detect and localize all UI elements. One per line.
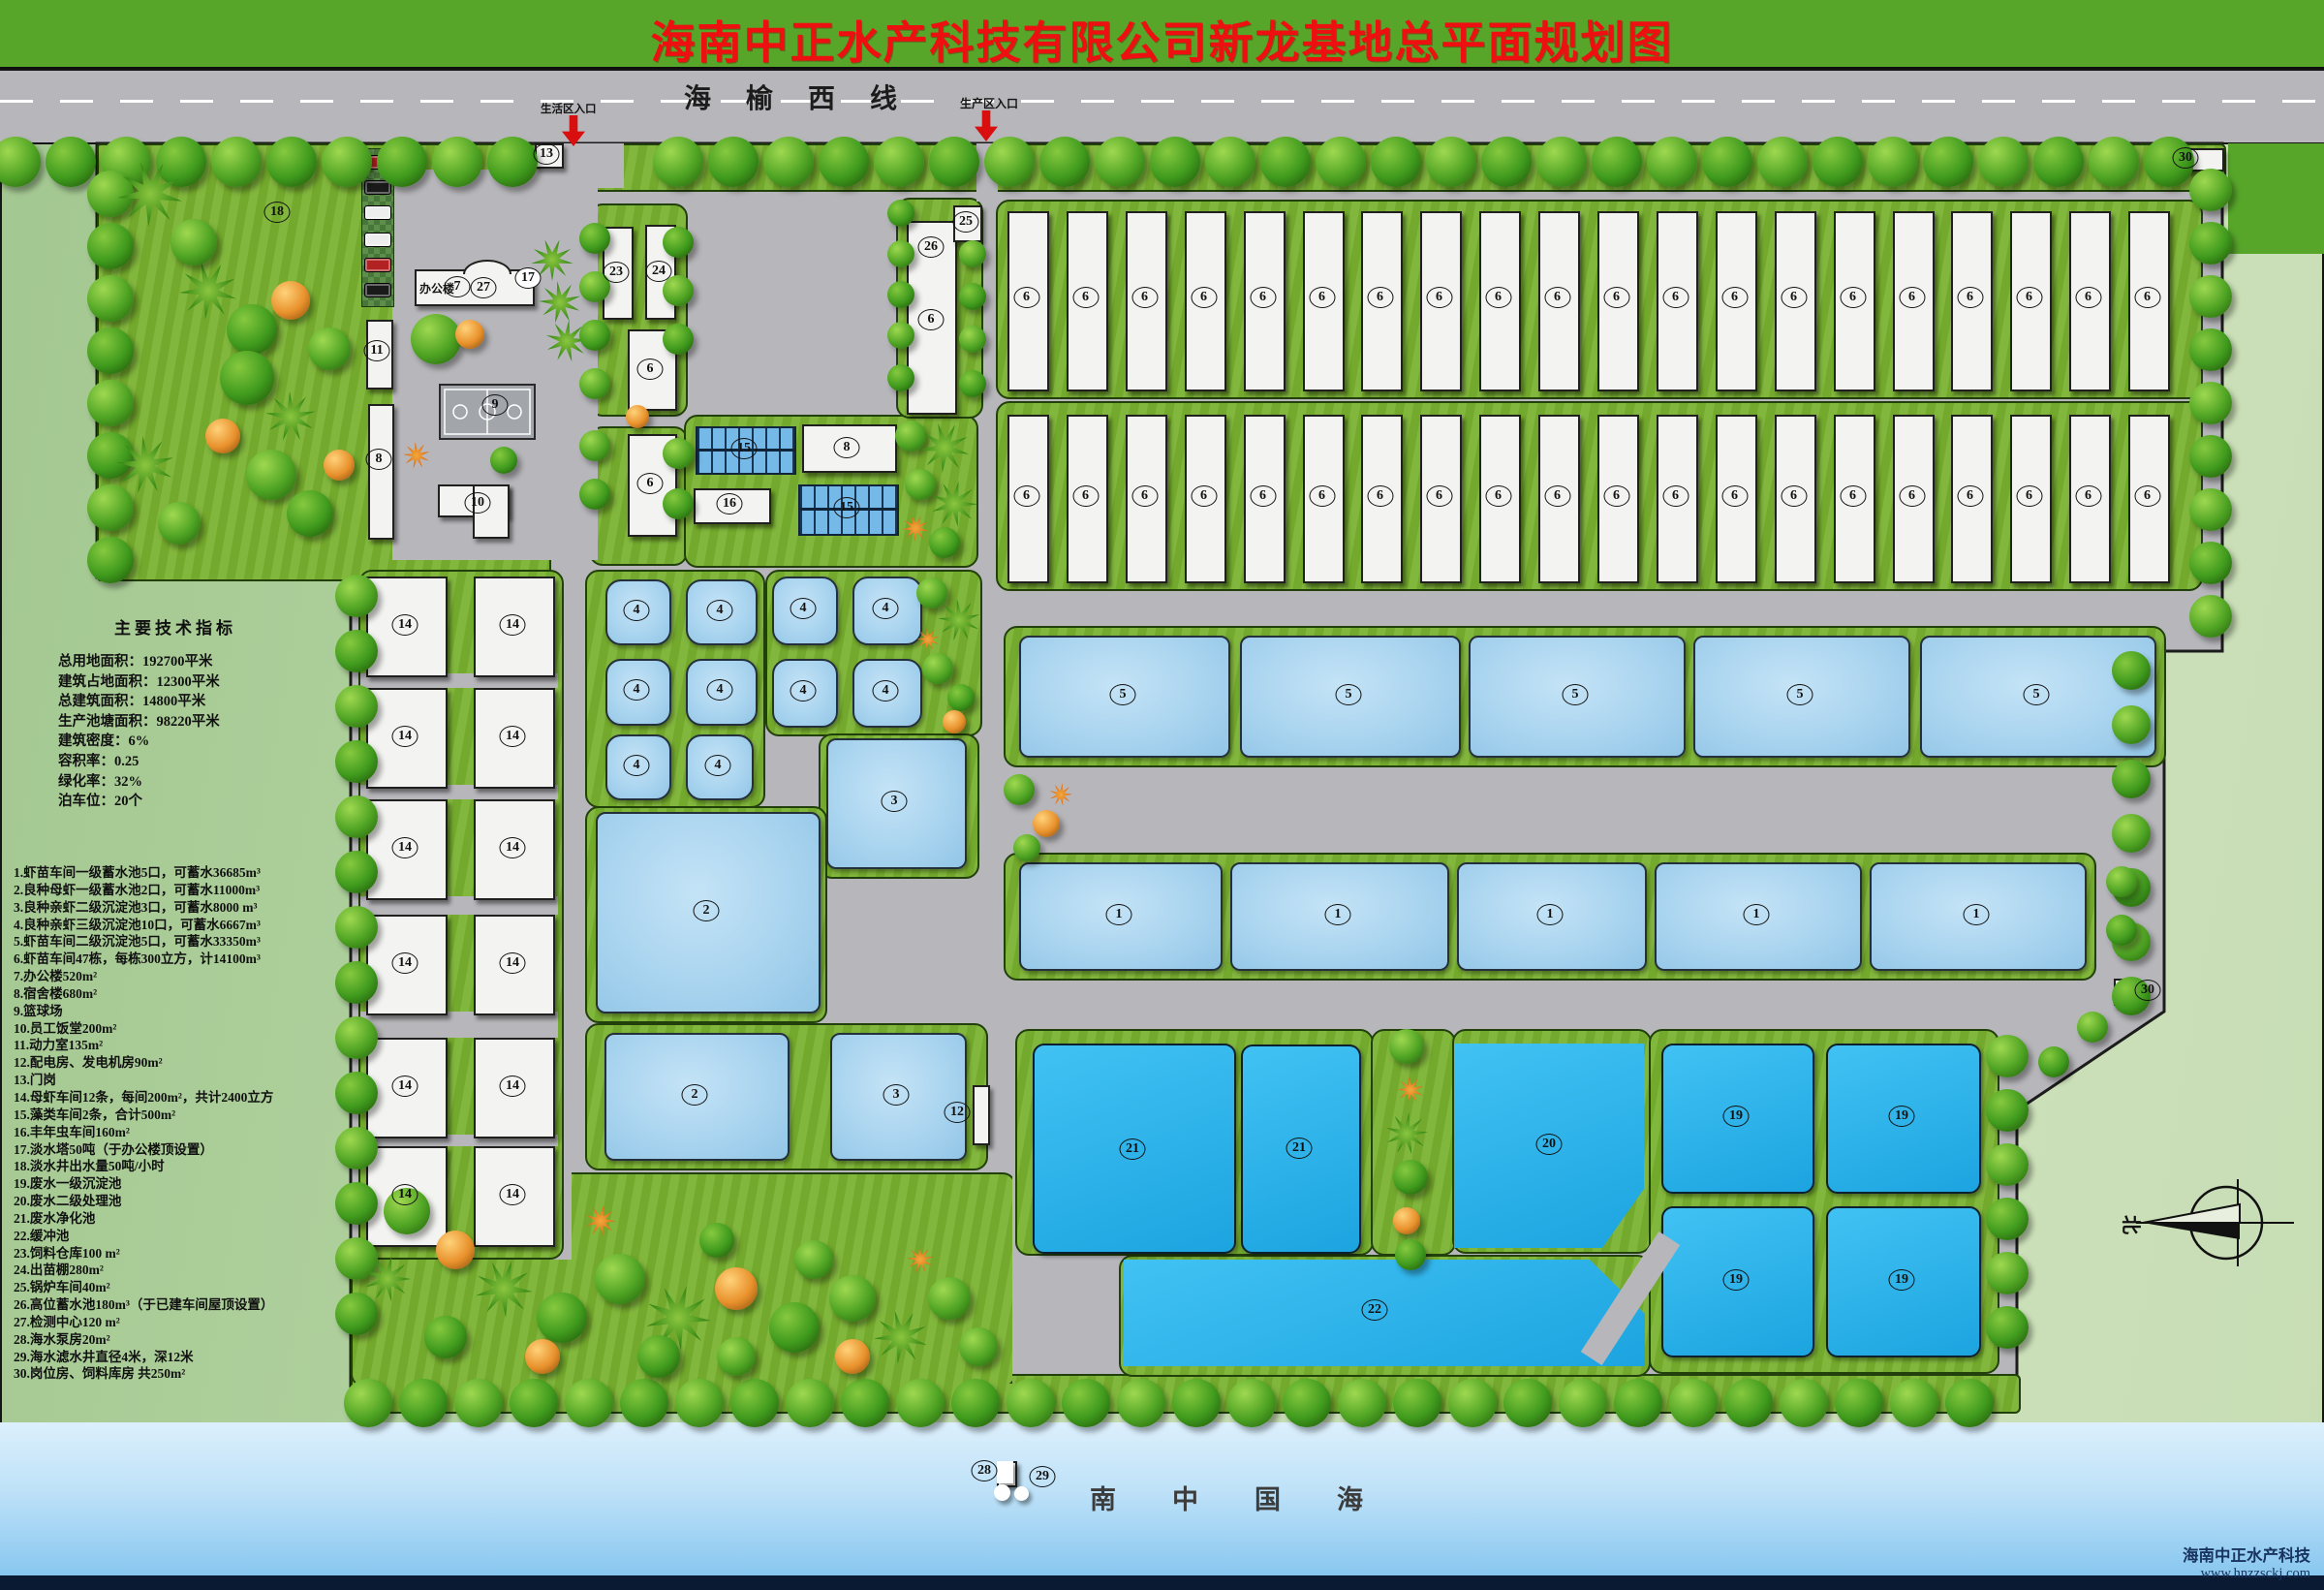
tree-icon [959, 326, 986, 353]
parked-car [364, 233, 391, 247]
legend-item: 20.废水二级处理池 [14, 1193, 273, 1210]
tree-icon [2112, 651, 2151, 690]
tree-icon [2189, 222, 2232, 265]
tree-icon [1283, 1379, 1331, 1427]
tree-icon [841, 1379, 889, 1427]
tree-icon [2189, 542, 2232, 584]
map-marker-6: 6 [1721, 287, 1748, 308]
tree-icon [959, 370, 986, 397]
legend-item: 19.废水一级沉淀池 [14, 1175, 273, 1193]
tree-icon [1702, 137, 1752, 187]
map-marker-16: 16 [717, 493, 743, 514]
map-marker-4: 4 [624, 755, 650, 776]
map-marker-2: 2 [694, 900, 720, 921]
legend-item: 12.配电房、发电机房90m² [14, 1054, 273, 1072]
tree-icon [595, 1254, 645, 1304]
map-marker-6: 6 [2016, 485, 2042, 507]
map-marker-4: 4 [873, 680, 899, 701]
tree-icon [929, 527, 960, 558]
legend-item: 17.淡水塔50吨（于办公楼顶设置） [14, 1141, 273, 1159]
tree-icon [2189, 328, 2232, 371]
map-marker-3: 3 [883, 1084, 910, 1106]
tree-icon [266, 137, 317, 187]
tree-icon [708, 137, 759, 187]
tree-icon [87, 171, 134, 217]
watermark-website: www.hnzzsckj.com [2183, 1566, 2310, 1582]
tree-icon [1049, 783, 1072, 806]
map-marker-14: 14 [500, 952, 526, 974]
map-marker-11: 11 [364, 340, 390, 361]
map-marker-6: 6 [1250, 485, 1276, 507]
map-marker-24: 24 [646, 261, 672, 282]
tree-icon [663, 324, 694, 355]
map-marker-14: 14 [392, 952, 418, 974]
tree-icon [335, 1072, 378, 1114]
map-marker-13: 13 [534, 143, 560, 165]
tree-icon [87, 223, 134, 269]
tree-icon [1481, 137, 1532, 187]
tree-icon [510, 1379, 558, 1427]
map-marker-27: 27 [471, 277, 497, 298]
map-marker-5: 5 [1563, 684, 1589, 705]
tree-icon [959, 1327, 998, 1366]
tree-icon [1007, 1379, 1055, 1427]
tree-icon [1095, 137, 1145, 187]
map-marker-28: 28 [972, 1460, 998, 1481]
tree-icon [335, 740, 378, 783]
tree-icon [786, 1379, 834, 1427]
tree-icon [1986, 1252, 2029, 1294]
tree-icon [1780, 1379, 1828, 1427]
tree-icon [730, 1379, 779, 1427]
tree-icon [2077, 1012, 2108, 1043]
tree-icon [887, 322, 914, 349]
tree-icon [1757, 137, 1808, 187]
legend-item: 2.良种母虾一级蓄水池2口，可蓄水11000m³ [14, 882, 273, 899]
tree-icon [2033, 137, 2084, 187]
map-marker-14: 14 [500, 726, 526, 747]
tech-indicator-line: 绿化率：32% [58, 772, 236, 793]
tree-icon [2106, 915, 2137, 946]
map-marker-6: 6 [637, 359, 664, 380]
map-marker-4: 4 [705, 755, 731, 776]
tree-icon [271, 281, 310, 320]
map-marker-1: 1 [1537, 904, 1564, 925]
tree-icon [794, 1240, 833, 1279]
south-china-sea [0, 1422, 2324, 1590]
tree-icon [2189, 488, 2232, 531]
tree-icon [947, 684, 975, 711]
map-marker-30: 30 [2135, 980, 2161, 1001]
map-marker-6: 6 [1899, 485, 1925, 507]
tree-icon [46, 137, 96, 187]
map-marker-2: 2 [682, 1084, 708, 1106]
map-marker-6: 6 [1131, 485, 1158, 507]
tree-icon [87, 327, 134, 374]
map-marker-6: 6 [1840, 287, 1866, 308]
tree-icon [874, 137, 924, 187]
legend-item: 23.饲料仓库100 m² [14, 1245, 273, 1263]
compass-north-label: 北 [2122, 1215, 2142, 1234]
legend-item: 3.良种亲虾二级沉淀池3口，可蓄水8000 m³ [14, 899, 273, 917]
tree-icon [436, 1231, 475, 1269]
map-marker-18: 18 [264, 202, 291, 223]
tree-icon [1724, 1379, 1773, 1427]
tree-icon [170, 219, 217, 265]
legend-item: 16.丰年虫车间160m² [14, 1124, 273, 1141]
tree-icon [626, 405, 649, 428]
tree-icon [1062, 1379, 1110, 1427]
sea-name-char: 国 [1255, 1479, 1281, 1516]
tree-icon [2189, 435, 2232, 478]
map-marker-6: 6 [1131, 287, 1158, 308]
watermark-company: 海南中正水产科技 [2183, 1543, 2310, 1566]
tree-icon [1890, 1379, 1938, 1427]
map-marker-15: 15 [731, 438, 758, 459]
tree-icon [896, 1379, 945, 1427]
tree-icon [335, 575, 378, 617]
tree-icon [158, 502, 201, 545]
tree-icon [487, 137, 538, 187]
tree-icon [87, 537, 134, 583]
tree-icon [0, 137, 41, 187]
map-marker-4: 4 [707, 679, 733, 701]
map-marker-6: 6 [1426, 485, 1452, 507]
tree-icon [1835, 1379, 1883, 1427]
map-marker-6: 6 [2134, 485, 2160, 507]
tree-icon [763, 137, 814, 187]
map-marker-19: 19 [1889, 1269, 1915, 1291]
tree-icon [2106, 866, 2137, 897]
sea-name-char: 南 [1090, 1479, 1116, 1516]
tree-icon [1395, 1239, 1426, 1270]
tree-icon [1978, 137, 2029, 187]
map-marker-6: 6 [1781, 485, 1807, 507]
map-marker-6: 6 [1662, 287, 1689, 308]
map-marker-12: 12 [945, 1102, 971, 1123]
tree-icon [1150, 137, 1200, 187]
map-marker-8: 8 [366, 449, 392, 470]
tree-icon [344, 1379, 392, 1427]
map-marker-10: 10 [465, 492, 491, 514]
tree-icon [819, 137, 869, 187]
tech-indicator-line: 泊车位：20个 [58, 792, 236, 812]
tree-icon [335, 906, 378, 949]
tree-icon [377, 137, 427, 187]
map-marker-4: 4 [790, 598, 817, 619]
map-marker-14: 14 [392, 726, 418, 747]
legend-item: 5.虾苗车间二级沉淀池5口，可蓄水33350m³ [14, 933, 273, 951]
tree-icon [322, 137, 372, 187]
map-marker-6: 6 [918, 309, 945, 330]
tech-indicators-title: 主要技术指标 [114, 614, 236, 639]
tree-icon [335, 795, 378, 838]
tree-icon [1172, 1379, 1221, 1427]
tree-icon [87, 432, 134, 479]
map-marker-6: 6 [1544, 485, 1570, 507]
tree-icon [959, 283, 986, 310]
tree-icon [87, 275, 134, 322]
tree-icon [335, 961, 378, 1004]
tree-icon [579, 479, 610, 510]
tree-icon [1393, 1379, 1441, 1427]
tree-icon [1004, 774, 1035, 805]
legend-item: 28.海水泵房20m² [14, 1331, 273, 1349]
map-marker-14: 14 [500, 614, 526, 636]
tree-icon [1448, 1379, 1497, 1427]
tech-indicators-panel: 主要技术指标 总用地面积：192700平米建筑占地面积：12300平米总建筑面积… [58, 614, 236, 812]
tree-icon [1986, 1035, 2029, 1077]
map-marker-4: 4 [790, 680, 817, 701]
tree-icon [1227, 1379, 1276, 1427]
building [368, 404, 394, 540]
map-marker-26: 26 [918, 236, 945, 258]
tree-icon [1316, 137, 1366, 187]
tree-icon [1986, 1089, 2029, 1132]
map-marker-6: 6 [2075, 485, 2101, 507]
map-marker-6: 6 [1840, 485, 1866, 507]
tree-icon [455, 320, 484, 349]
map-marker-6: 6 [1191, 287, 1217, 308]
map-marker-19: 19 [1723, 1269, 1750, 1291]
map-marker-14: 14 [500, 1184, 526, 1205]
tree-icon [1503, 1379, 1552, 1427]
tree-icon [490, 447, 517, 474]
map-marker-5: 5 [1787, 684, 1813, 705]
parked-car [364, 205, 391, 220]
map-marker-6: 6 [1603, 485, 1629, 507]
map-marker-23: 23 [604, 262, 630, 283]
road-gap [360, 1012, 558, 1038]
tree-icon [324, 450, 355, 481]
tree-icon [227, 304, 277, 355]
legend-item: 14.母虾车间12条，每间200m²，共计2400立方 [14, 1089, 273, 1107]
tree-icon [895, 421, 926, 452]
tree-icon [887, 364, 914, 391]
tree-icon [675, 1379, 724, 1427]
tree-icon [637, 1335, 680, 1378]
map-marker-25: 25 [953, 211, 979, 233]
tech-indicator-line: 建筑密度：6% [58, 732, 236, 752]
tree-icon [335, 1127, 378, 1169]
map-marker-6: 6 [2016, 287, 2042, 308]
sea-filter-well [1014, 1486, 1029, 1501]
map-marker-6: 6 [1662, 485, 1689, 507]
map-marker-4: 4 [873, 598, 899, 619]
legend-item: 13.门岗 [14, 1072, 273, 1089]
compass-icon: 北 [2122, 1174, 2306, 1271]
map-marker-6: 6 [1544, 287, 1570, 308]
tree-icon [1813, 137, 1863, 187]
tree-icon [579, 320, 610, 351]
building [973, 1085, 990, 1145]
legend-item: 26.高位蓄水池180m³（于已建车间屋顶设置） [14, 1296, 273, 1314]
tree-icon [951, 1379, 1000, 1427]
map-marker-4: 4 [624, 679, 650, 701]
tree-icon [829, 1275, 876, 1322]
tree-icon [87, 484, 134, 531]
map-marker-21: 21 [1286, 1138, 1313, 1159]
tree-icon [335, 1016, 378, 1059]
tree-icon [399, 1379, 448, 1427]
watermark: 海南中正水产科技 www.hnzzsckj.com [2183, 1543, 2310, 1582]
map-marker-5: 5 [1336, 684, 1362, 705]
map-marker-6: 6 [1309, 485, 1335, 507]
tree-icon [835, 1339, 870, 1374]
tree-icon [984, 137, 1035, 187]
tree-icon [454, 1379, 503, 1427]
tree-icon [287, 490, 333, 537]
legend-item: 4.良种亲虾三级沉淀池10口，可蓄水6667m³ [14, 917, 273, 934]
legend-item: 30.岗位房、饲料库房 共250m² [14, 1365, 273, 1383]
legend-item: 1.虾苗车间一级蓄水池5口，可蓄水36685m³ [14, 864, 273, 882]
map-marker-20: 20 [1536, 1134, 1563, 1155]
map-marker-6: 6 [1485, 287, 1511, 308]
tree-icon [1592, 137, 1642, 187]
map-marker-7: 7 [445, 276, 471, 297]
tree-icon [663, 488, 694, 519]
tech-indicator-line: 总用地面积：192700平米 [58, 652, 236, 672]
map-marker-8: 8 [834, 437, 860, 458]
tree-icon [2112, 705, 2151, 744]
tree-icon [1945, 1379, 1994, 1427]
tree-icon [156, 137, 206, 187]
tree-icon [887, 240, 914, 267]
map-marker-14: 14 [392, 1184, 418, 1205]
map-marker-6: 6 [1309, 287, 1335, 308]
tree-icon [2189, 595, 2232, 638]
tree-icon [717, 1337, 756, 1376]
tree-icon [1426, 137, 1476, 187]
map-marker-1: 1 [1106, 904, 1132, 925]
sea-name-char: 中 [1172, 1479, 1198, 1516]
map-marker-4: 4 [707, 600, 733, 621]
tree-icon [205, 419, 240, 453]
map-marker-6: 6 [1426, 287, 1452, 308]
map-marker-4: 4 [624, 600, 650, 621]
tree-icon [411, 314, 461, 364]
tree-icon [922, 653, 953, 684]
tree-icon [335, 851, 378, 893]
map-marker-6: 6 [1721, 485, 1748, 507]
tree-icon [1039, 137, 1090, 187]
map-marker-6: 6 [1781, 287, 1807, 308]
tree-icon [663, 438, 694, 469]
tree-icon [2112, 760, 2151, 798]
map-marker-5: 5 [2024, 684, 2050, 705]
map-marker-6: 6 [1191, 485, 1217, 507]
map-marker-1: 1 [1744, 904, 1770, 925]
legend-item: 15.藻类车间2条，合计500m² [14, 1107, 273, 1124]
tree-icon [1338, 1379, 1386, 1427]
map-marker-6: 6 [1485, 485, 1511, 507]
map-marker-14: 14 [392, 837, 418, 858]
tree-icon [308, 327, 351, 370]
legend-item: 22.缓冲池 [14, 1228, 273, 1245]
tree-icon [1013, 834, 1040, 861]
tree-icon [579, 430, 610, 461]
tree-icon [1393, 1207, 1420, 1234]
tree-icon [653, 137, 703, 187]
tech-indicator-line: 总建筑面积：14800平米 [58, 692, 236, 712]
tree-icon [1614, 1379, 1662, 1427]
tree-icon [1647, 137, 1697, 187]
legend-item: 27.检测中心120 m² [14, 1314, 273, 1331]
tech-indicator-line: 建筑占地面积：12300平米 [58, 672, 236, 693]
legend-item: 10.员工饭堂200m² [14, 1020, 273, 1038]
map-marker-14: 14 [500, 837, 526, 858]
tree-icon [663, 275, 694, 306]
sea-filter-well [994, 1484, 1010, 1501]
parked-car [364, 283, 391, 297]
tree-icon [525, 1339, 560, 1374]
tree-icon [943, 710, 966, 733]
tree-icon [1389, 1029, 1424, 1064]
tree-icon [929, 137, 979, 187]
map-marker-1: 1 [1964, 904, 1990, 925]
tree-icon [1669, 1379, 1718, 1427]
tech-indicators-lines: 总用地面积：192700平米建筑占地面积：12300平米总建筑面积：14800平… [58, 652, 236, 812]
map-marker-22: 22 [1362, 1299, 1388, 1321]
tree-icon [2189, 169, 2232, 211]
tree-icon [1868, 137, 1918, 187]
tree-icon [537, 1293, 587, 1343]
tree-icon [887, 281, 914, 308]
map-marker-17: 17 [515, 267, 542, 289]
legend-item: 29.海水滤水井直径4米，深12米 [14, 1349, 273, 1366]
tree-icon [2089, 137, 2139, 187]
legend-item: 21.废水净化池 [14, 1210, 273, 1228]
footer-bar [0, 1575, 2324, 1590]
tree-icon [335, 1293, 378, 1335]
map-marker-6: 6 [1013, 287, 1039, 308]
site-plan-page: 海南中正水产科技有限公司新龙基地总平面规划图 海榆西线 生活区入口 生产区入口 … [0, 0, 2324, 1590]
tree-icon [959, 240, 986, 267]
map-marker-6: 6 [1899, 287, 1925, 308]
tree-icon [2112, 814, 2151, 853]
tree-icon [1986, 1306, 2029, 1349]
map-marker-6: 6 [1603, 287, 1629, 308]
map-marker-6: 6 [1013, 485, 1039, 507]
map-marker-15: 15 [834, 497, 860, 518]
map-marker-21: 21 [1120, 1138, 1146, 1160]
tree-icon [699, 1223, 734, 1258]
map-marker-14: 14 [392, 1076, 418, 1097]
map-marker-1: 1 [1325, 904, 1351, 925]
tech-indicator-line: 容积率：0.25 [58, 752, 236, 772]
tree-icon [2189, 382, 2232, 424]
map-marker-6: 6 [1072, 485, 1099, 507]
map-marker-3: 3 [882, 791, 908, 812]
map-layer: 6666666666666666666666666666666666666666… [0, 0, 2324, 1590]
tree-icon [335, 685, 378, 728]
map-marker-6: 6 [1072, 287, 1099, 308]
tree-icon [1986, 1198, 2029, 1240]
tree-icon [335, 630, 378, 672]
tree-icon [335, 1182, 378, 1225]
legend-item: 18.淡水井出水量50吨/小时 [14, 1158, 273, 1175]
tree-icon [887, 200, 914, 227]
tree-icon [1393, 1160, 1428, 1195]
legend-item: 24.出苗棚280m² [14, 1262, 273, 1279]
map-marker-6: 6 [1250, 287, 1276, 308]
tree-icon [211, 137, 262, 187]
legend-item: 11.动力室135m² [14, 1037, 273, 1054]
map-marker-6: 6 [1957, 485, 1983, 507]
tree-icon [220, 351, 274, 405]
map-marker-29: 29 [1030, 1466, 1056, 1487]
parked-car [364, 258, 391, 272]
